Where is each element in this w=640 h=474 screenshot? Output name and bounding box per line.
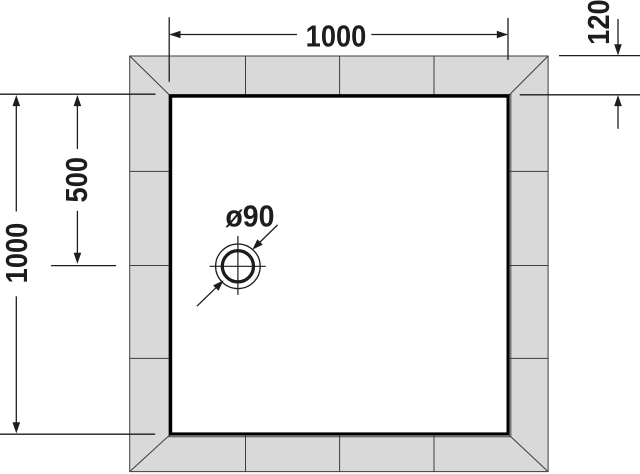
svg-text:120: 120 — [582, 0, 616, 45]
svg-text:500: 500 — [60, 157, 94, 203]
svg-text:1000: 1000 — [0, 223, 34, 284]
svg-text:1000: 1000 — [306, 20, 367, 54]
svg-text:ø90: ø90 — [225, 200, 274, 234]
